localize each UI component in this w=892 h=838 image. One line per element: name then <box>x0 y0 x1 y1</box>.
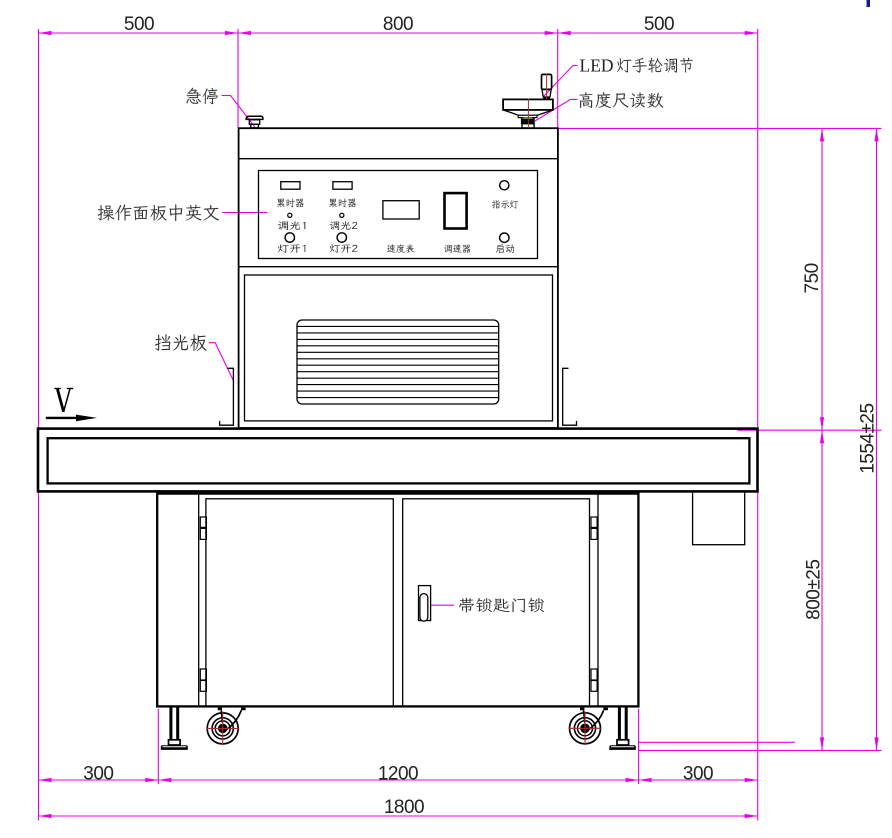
svg-text:LED: LED <box>580 56 614 76</box>
svg-text:1800: 1800 <box>384 797 424 818</box>
svg-text:500: 500 <box>124 14 154 35</box>
svg-text:300: 300 <box>83 763 113 784</box>
svg-text:500: 500 <box>644 14 674 35</box>
svg-text:300: 300 <box>683 763 713 784</box>
svg-text:750: 750 <box>802 263 823 293</box>
svg-text:800±25: 800±25 <box>804 560 825 620</box>
svg-text:1554±25: 1554±25 <box>858 403 879 473</box>
svg-text:800: 800 <box>383 14 413 35</box>
svg-text:1200: 1200 <box>378 763 418 784</box>
